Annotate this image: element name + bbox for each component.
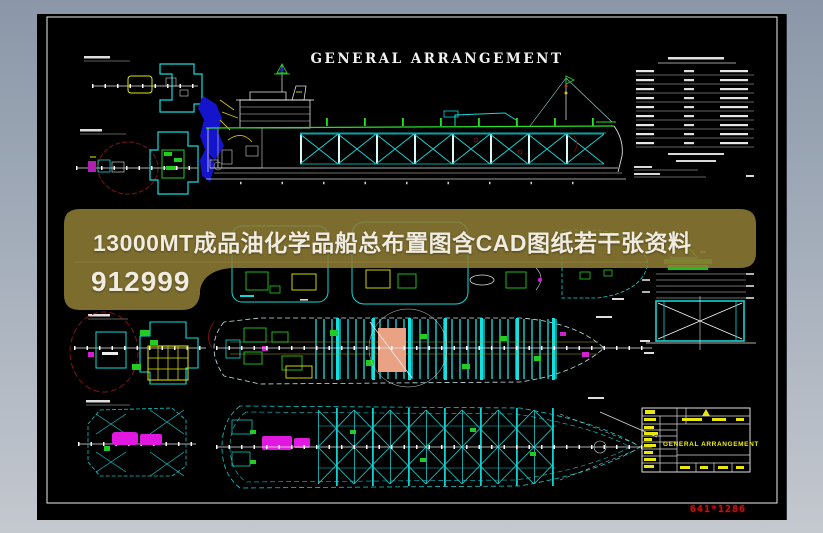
window-frame: GENERAL ARRANGEMENT [0,0,823,533]
image-size-label: 641*1286 [660,504,776,515]
banner-shape [64,209,756,310]
banner-overlay [0,0,823,533]
